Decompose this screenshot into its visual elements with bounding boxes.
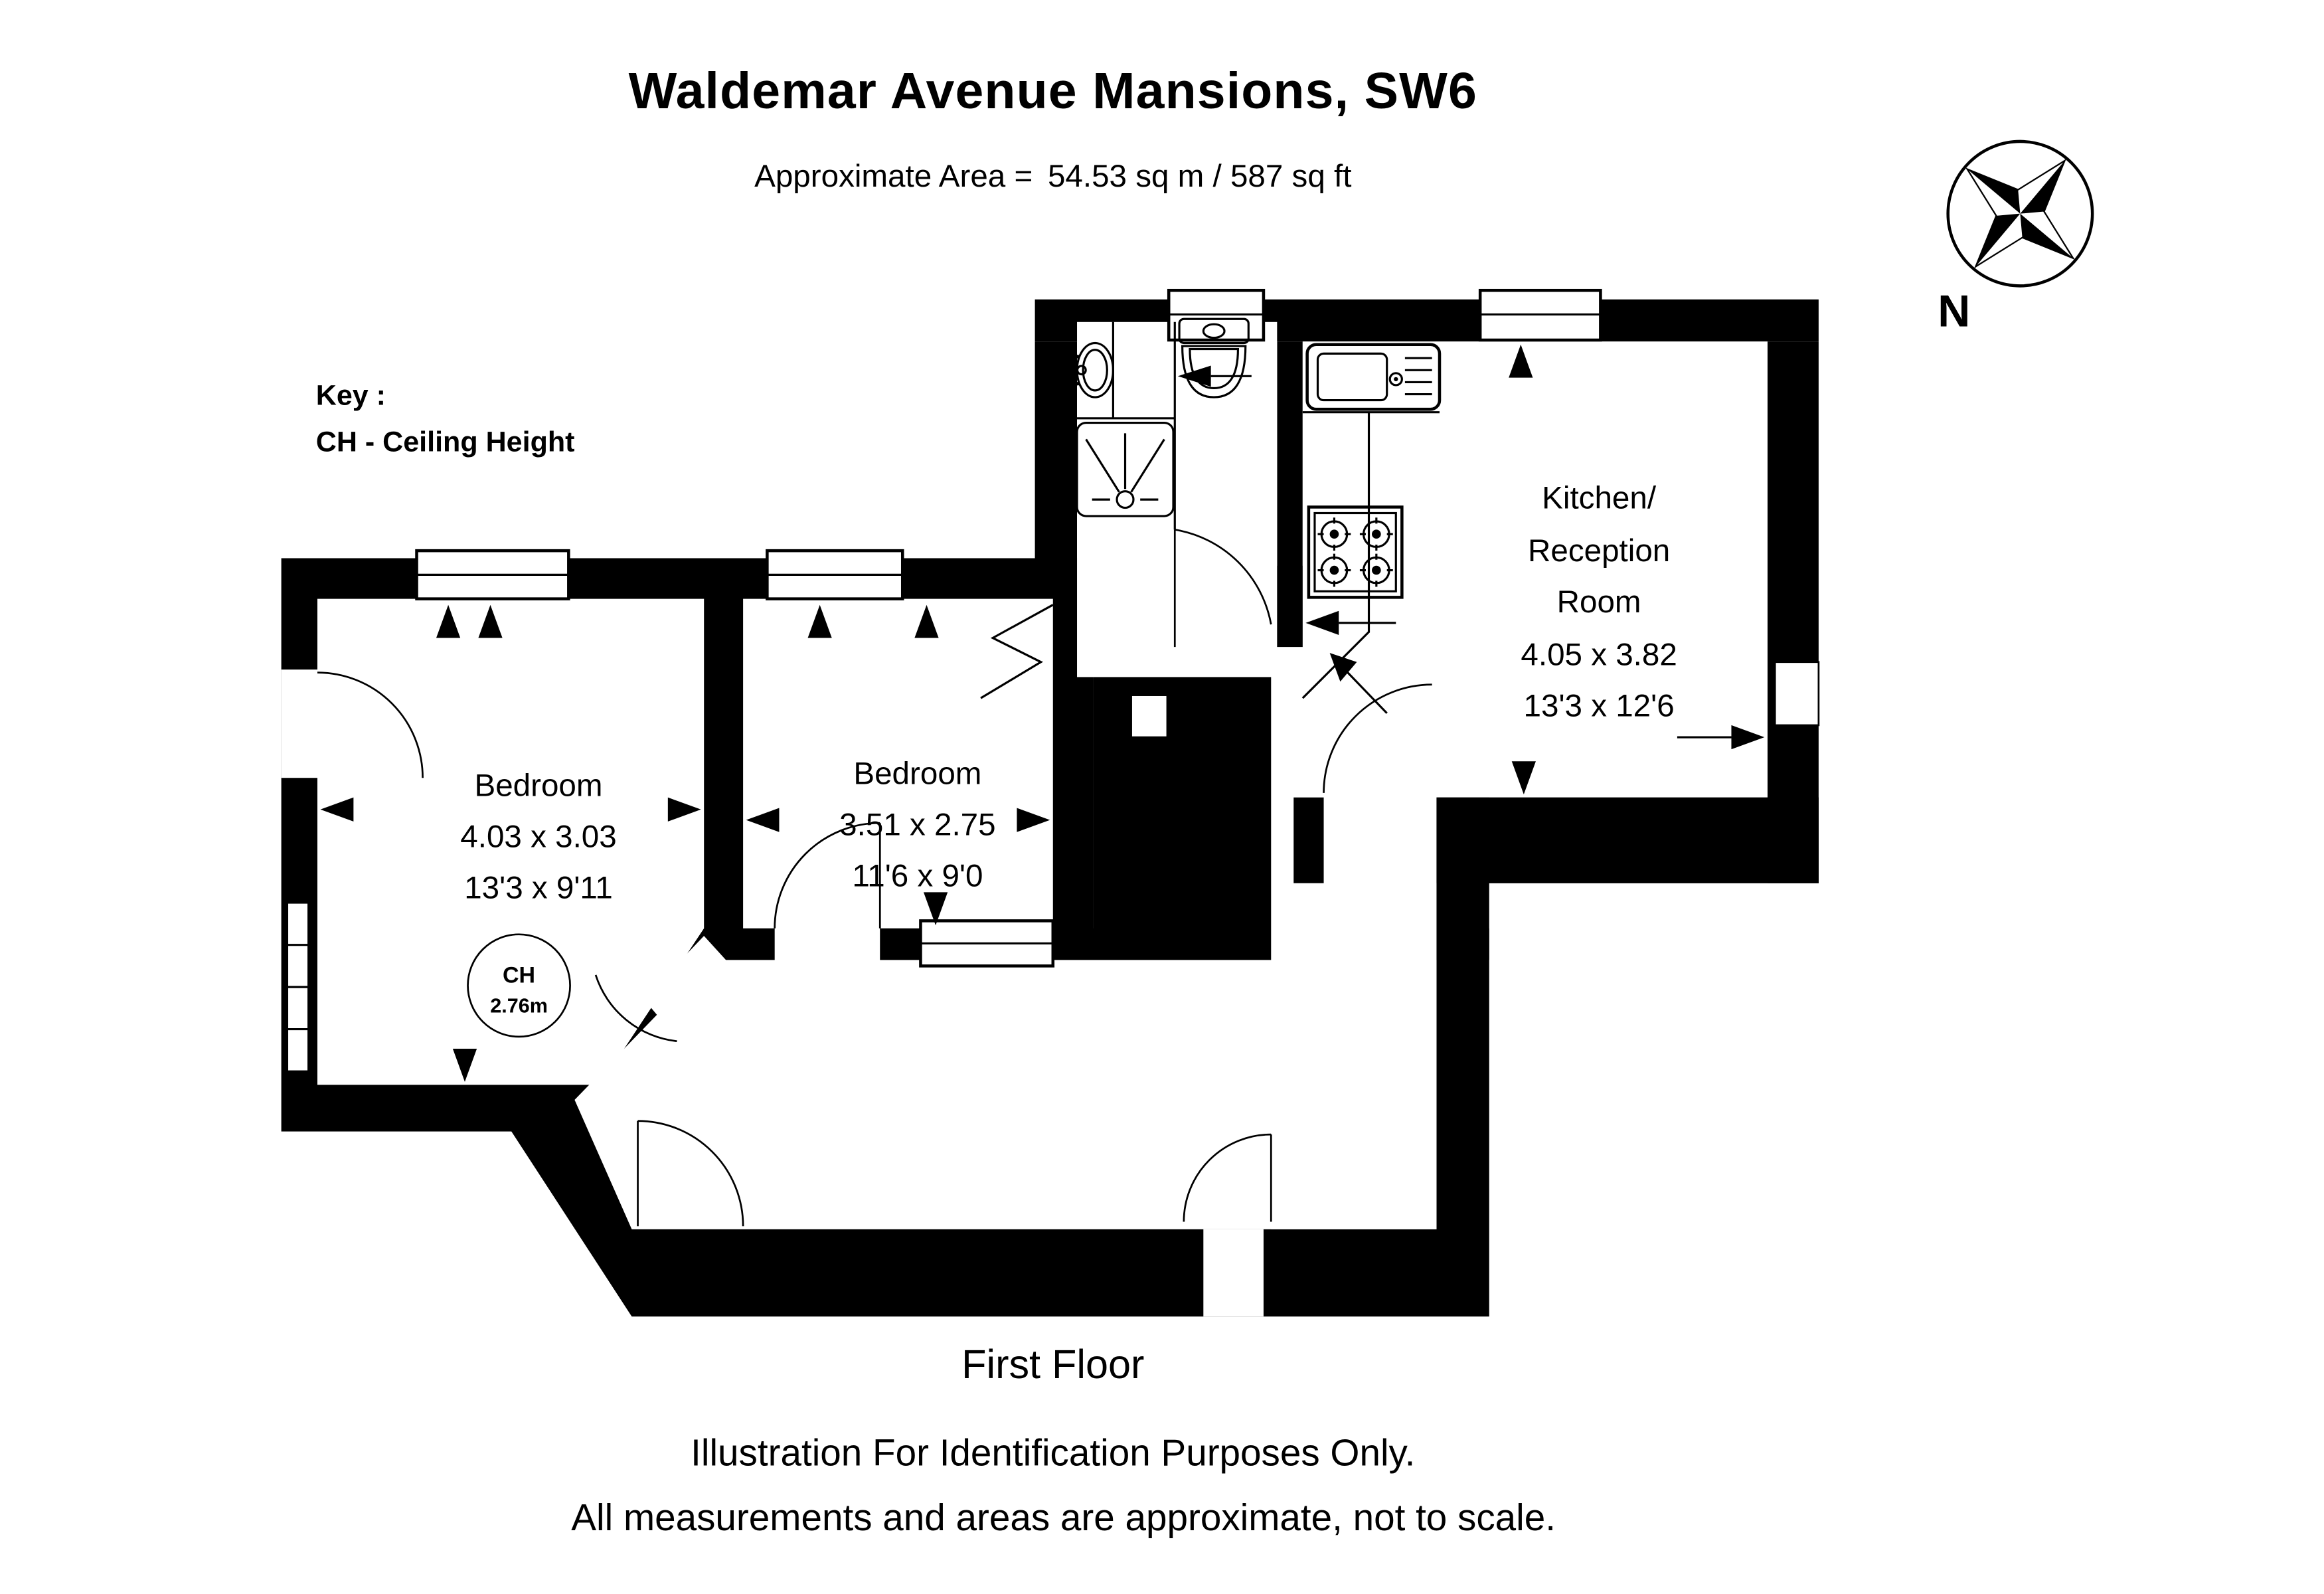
bedroom2-door-opening bbox=[775, 921, 880, 968]
wall-notch bbox=[1131, 695, 1167, 737]
window-icon bbox=[1480, 290, 1600, 340]
compass-rose-icon bbox=[1948, 141, 2092, 286]
kitchen-name-line1: Kitchen/ bbox=[1542, 482, 1656, 517]
kitchen-name-line3: Room bbox=[1557, 585, 1641, 621]
kitchen-imperial: 13'3 x 12'6 bbox=[1524, 689, 1675, 725]
ceiling-height-value: 2.76m bbox=[490, 994, 548, 1017]
area-subtitle: Approximate Area =54.53 sq m / 587 sq ft bbox=[754, 159, 1351, 195]
bedroom1-alcove-opening bbox=[282, 669, 317, 778]
wall-notch bbox=[1775, 662, 1819, 725]
bedroom1-imperial: 13'3 x 9'11 bbox=[464, 871, 613, 907]
entry-door-opening bbox=[1203, 1229, 1264, 1316]
interior-window-icon bbox=[920, 921, 1052, 966]
ceiling-height-label: CH bbox=[503, 963, 535, 989]
bedroom1-metric: 4.03 x 3.03 bbox=[460, 820, 616, 856]
window-icon bbox=[417, 551, 569, 598]
window-icon bbox=[767, 551, 902, 598]
kitchen-name-line2: Reception bbox=[1528, 534, 1670, 570]
bedroom2-name: Bedroom bbox=[853, 756, 981, 792]
area-value: 54.53 sq m / 587 sq ft bbox=[1048, 159, 1352, 194]
floor-label: First Floor bbox=[961, 1342, 1144, 1389]
page-title: Waldemar Avenue Mansions, SW6 bbox=[629, 63, 1477, 122]
key-entry: CH - Ceiling Height bbox=[316, 427, 575, 460]
bedroom2-metric: 3.51 x 2.75 bbox=[839, 808, 995, 844]
bedroom1-name: Bedroom bbox=[474, 769, 602, 805]
area-label: Approximate Area = bbox=[754, 159, 1033, 194]
north-label: N bbox=[1938, 288, 1970, 339]
kitchen-metric: 4.05 x 3.82 bbox=[1521, 638, 1677, 674]
disclaimer-line2: All measurements and areas are approxima… bbox=[571, 1497, 1556, 1541]
bedroom2-imperial: 11'6 x 9'0 bbox=[852, 859, 983, 895]
key-heading: Key : bbox=[316, 381, 386, 414]
disclaimer-line1: Illustration For Identification Purposes… bbox=[691, 1433, 1415, 1476]
floorplan-page: Waldemar Avenue Mansions, SW6 Approximat… bbox=[0, 0, 2324, 1593]
floorplan-drawing bbox=[0, 0, 2324, 1593]
